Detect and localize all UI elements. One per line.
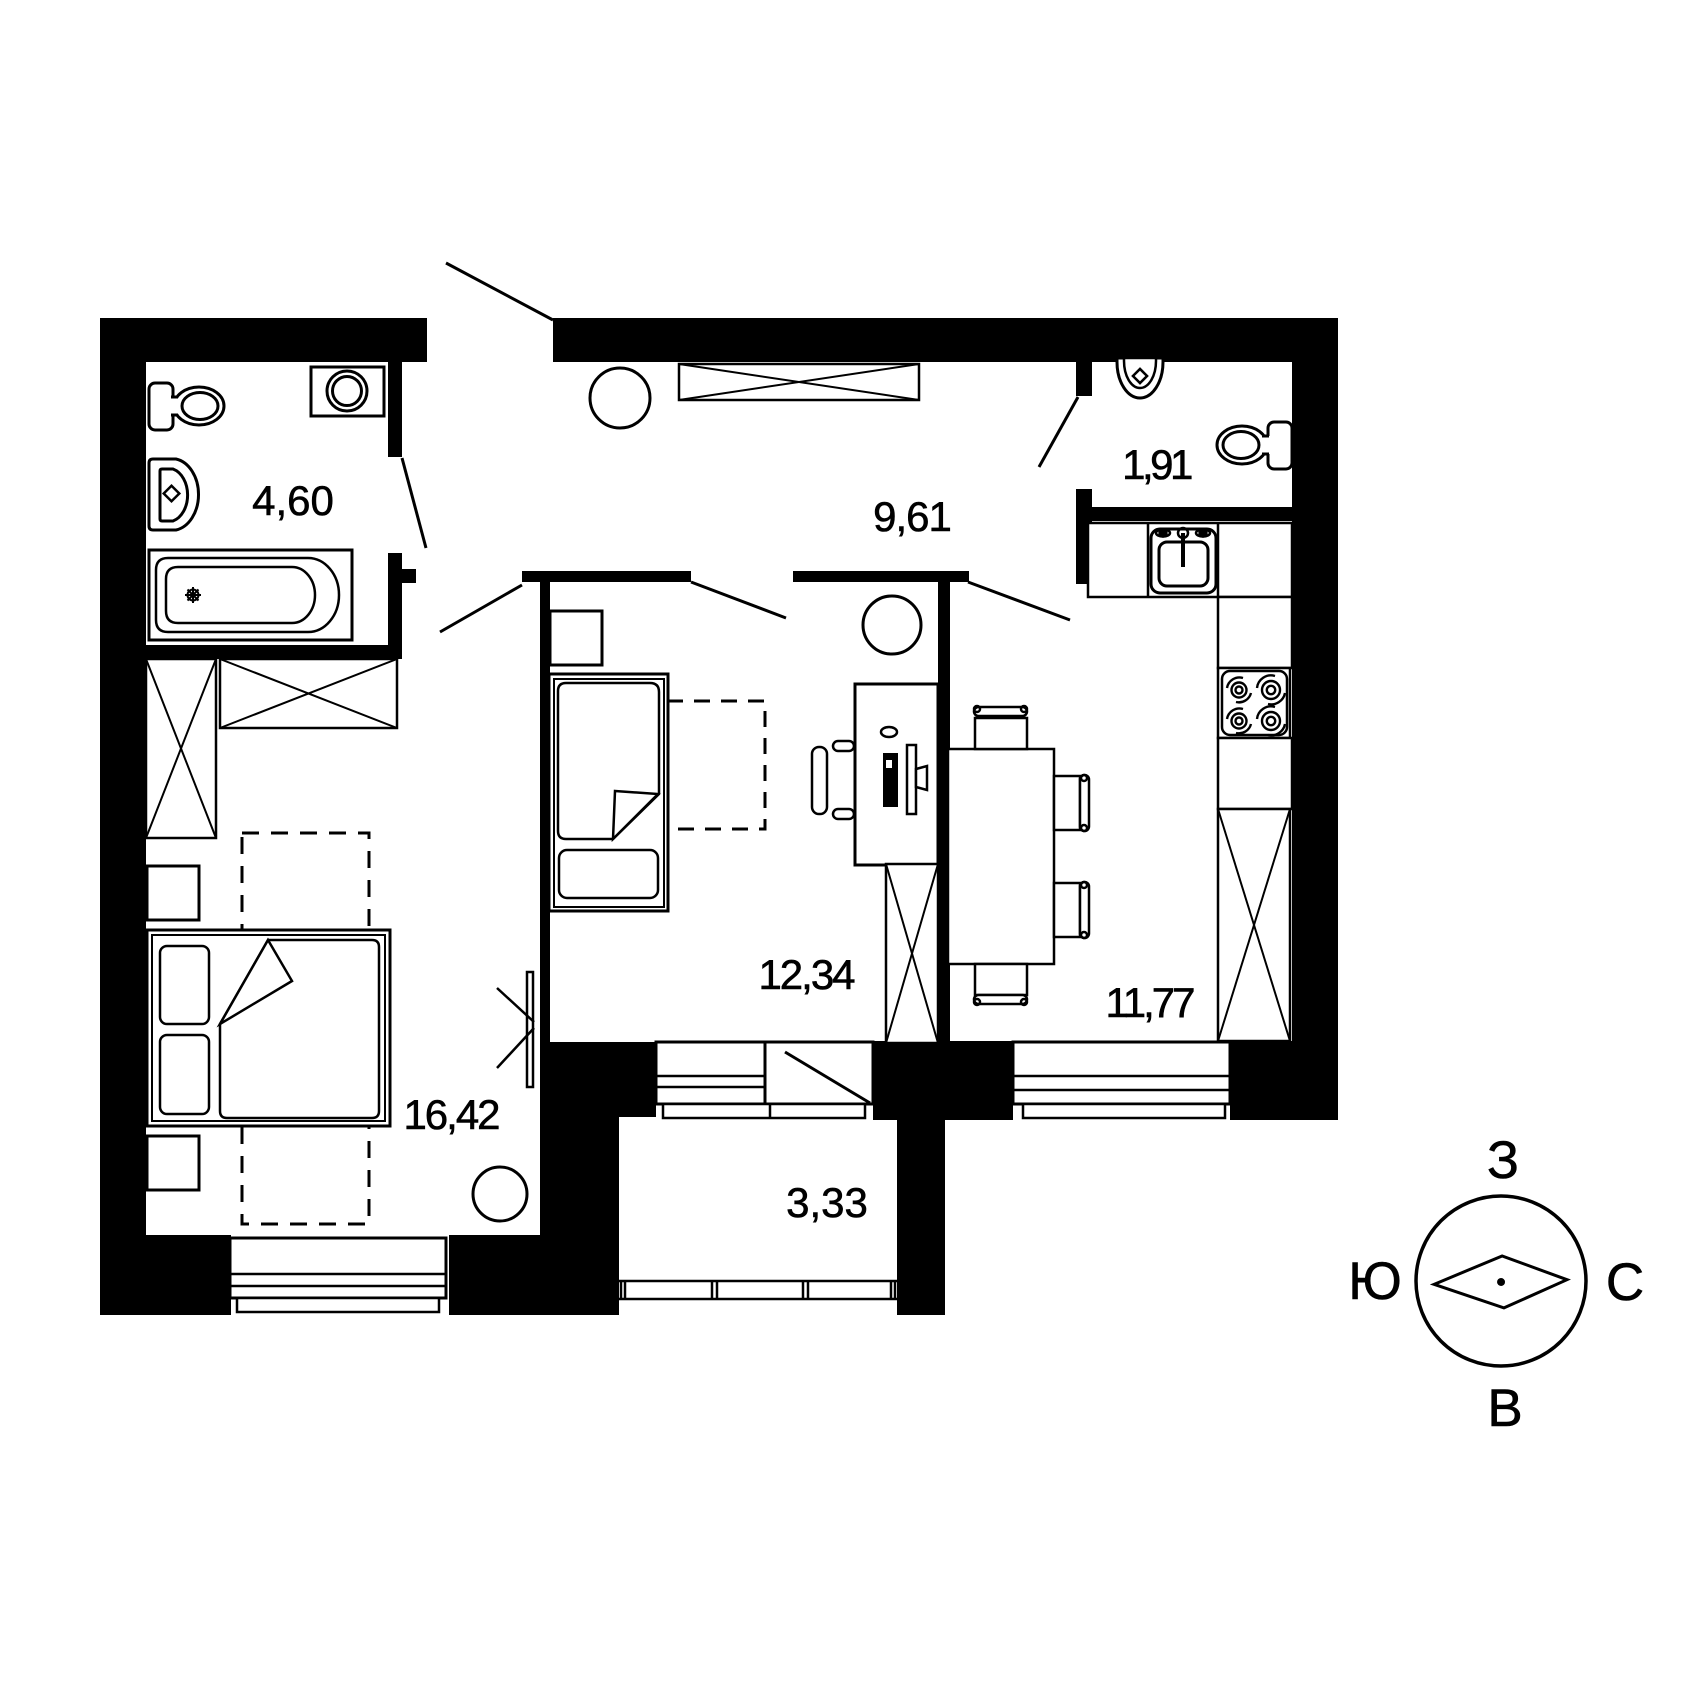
svg-text:11,77: 11,77 [1106, 979, 1195, 1026]
svg-text:Ю: Ю [1348, 1252, 1402, 1311]
svg-text:4,60: 4,60 [252, 477, 334, 524]
svg-text:1,91: 1,91 [1122, 441, 1192, 488]
svg-text:16,42: 16,42 [403, 1091, 499, 1138]
svg-text:В: В [1487, 1379, 1522, 1438]
svg-text:С: С [1606, 1253, 1644, 1312]
svg-text:9,61: 9,61 [873, 493, 951, 540]
svg-text:3,33: 3,33 [786, 1179, 868, 1226]
svg-text:З: З [1487, 1131, 1519, 1190]
svg-text:12,34: 12,34 [758, 951, 855, 998]
